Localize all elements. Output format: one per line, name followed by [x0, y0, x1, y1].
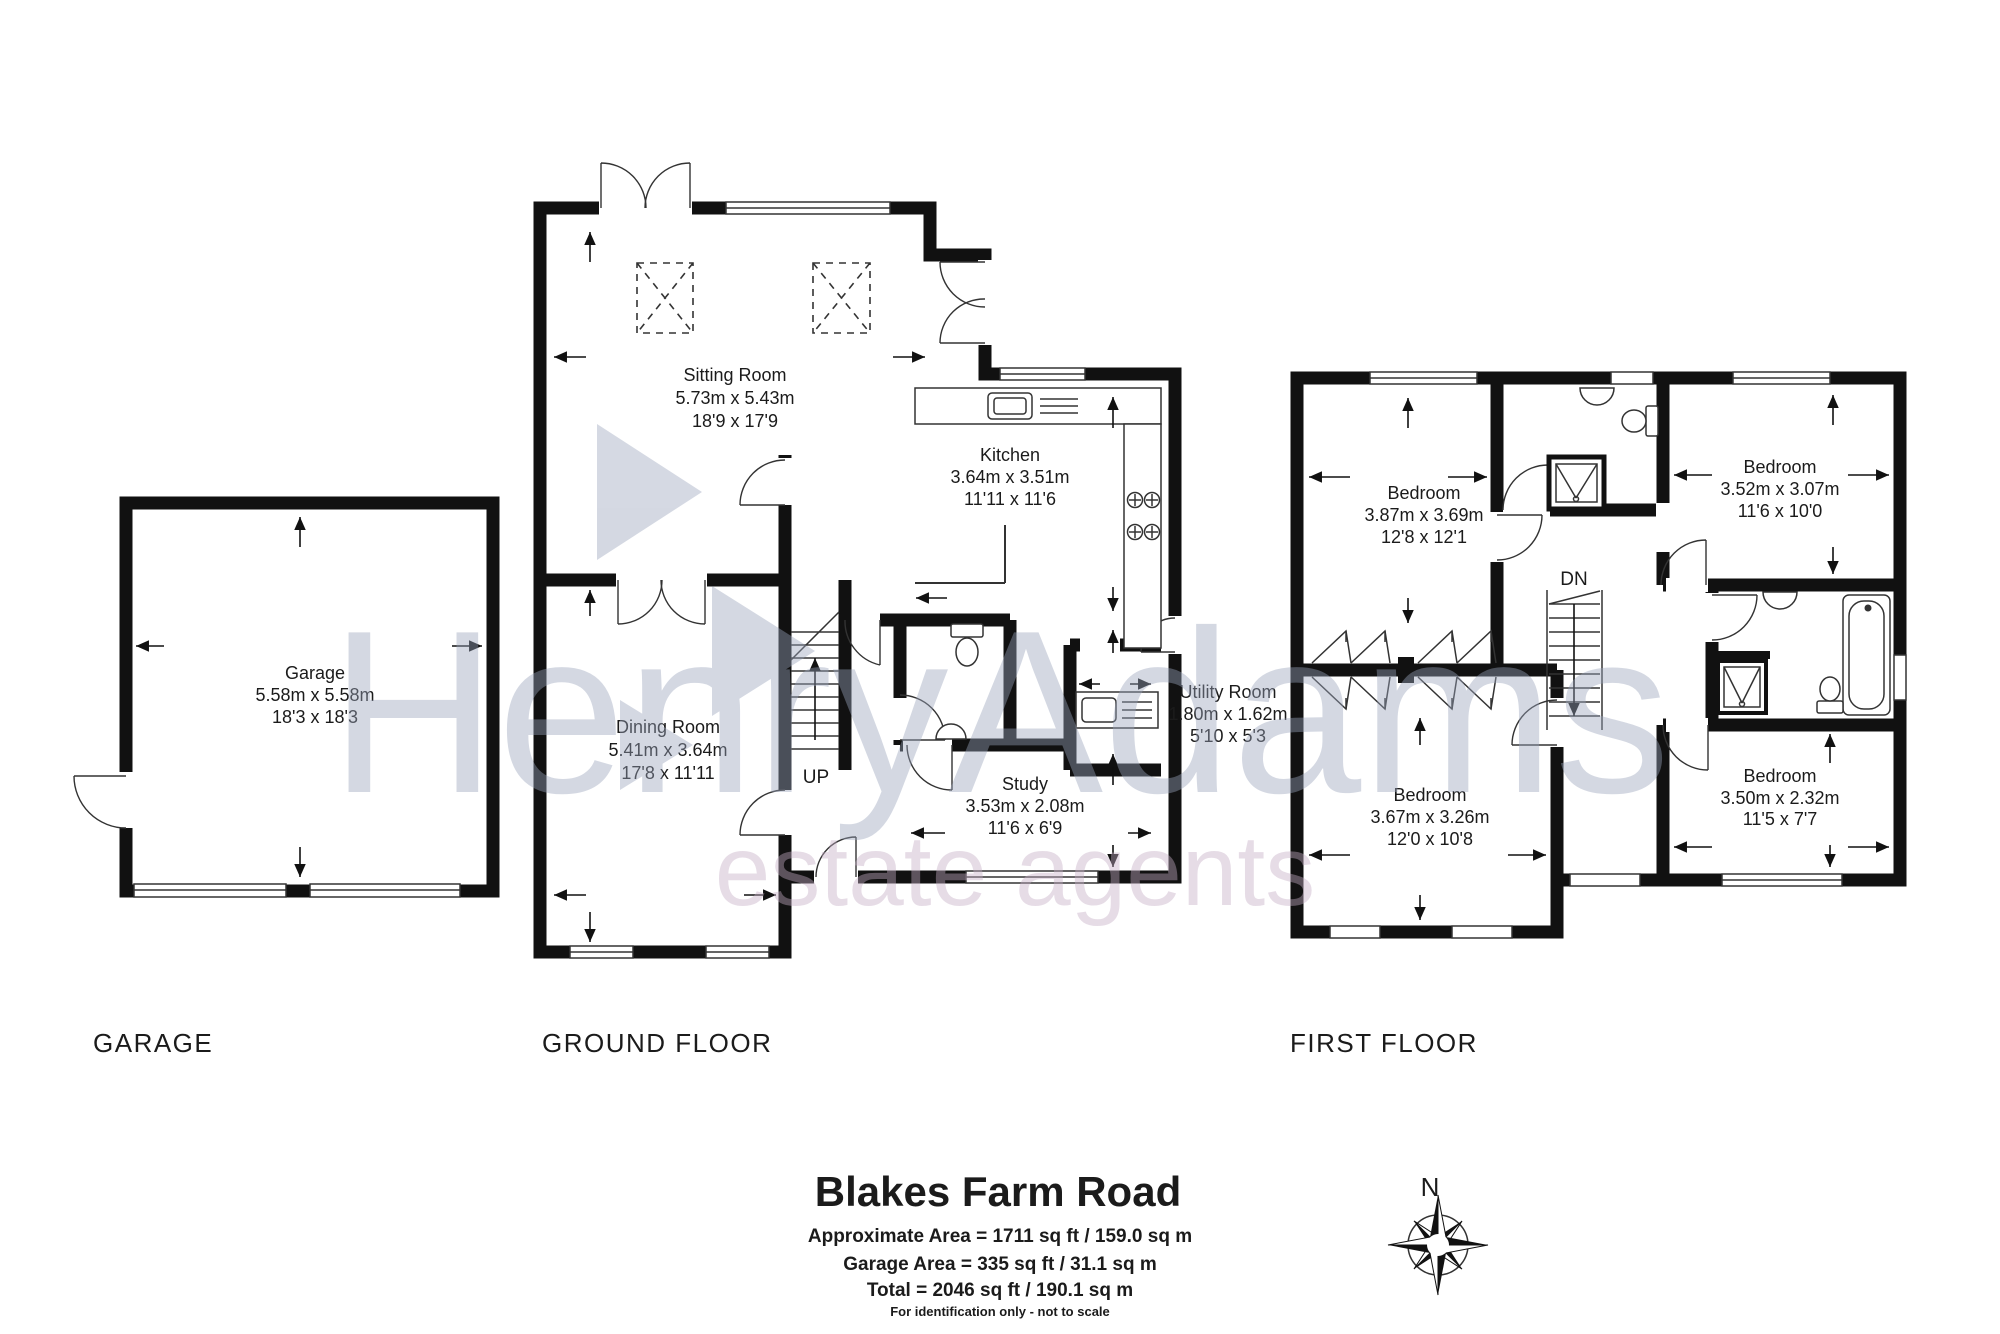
svg-text:12'8 x 12'1: 12'8 x 12'1 — [1381, 527, 1467, 547]
svg-text:11'11 x 11'6: 11'11 x 11'6 — [964, 489, 1056, 509]
ensuite-fixtures — [1549, 388, 1658, 509]
svg-text:3.52m x 3.07m: 3.52m x 3.07m — [1720, 479, 1839, 499]
svg-text:3.50m x 2.32m: 3.50m x 2.32m — [1720, 788, 1839, 808]
svg-text:11'6 x 10'0: 11'6 x 10'0 — [1738, 501, 1823, 521]
floor-labels: GARAGE GROUND FLOOR FIRST FLOOR — [93, 1028, 1478, 1058]
logo-triangle-icon — [597, 424, 702, 560]
floorplan-canvas: Garage 5.58m x 5.58m 18'3 x 18'3 — [0, 0, 2000, 1334]
room-kitchen-label: Kitchen 3.64m x 3.51m 11'11 x 11'6 — [950, 445, 1069, 509]
room-bed2-label: Bedroom 3.52m x 3.07m 11'6 x 10'0 — [1720, 457, 1839, 521]
basin-icon — [1580, 388, 1614, 405]
svg-text:11'5 x 7'7: 11'5 x 7'7 — [1743, 809, 1818, 829]
compass-rose-icon: N — [1388, 1172, 1488, 1295]
toilet-cistern — [1817, 701, 1843, 713]
garage-floor-label: GARAGE — [93, 1028, 213, 1058]
garage-door — [74, 772, 133, 828]
page-title: Blakes Farm Road — [815, 1168, 1181, 1215]
toilet-icon — [1820, 677, 1840, 701]
shower-icon — [1549, 457, 1604, 509]
area-line-3: Total = 2046 sq ft / 190.1 sq m — [867, 1280, 1133, 1301]
north-label: N — [1421, 1172, 1440, 1202]
room-bed4-label: Bedroom 3.50m x 2.32m 11'5 x 7'7 — [1720, 766, 1839, 829]
svg-text:3.64m x 3.51m: 3.64m x 3.51m — [950, 467, 1069, 487]
svg-text:Sitting Room: Sitting Room — [683, 365, 786, 385]
room-sitting-label: Sitting Room 5.73m x 5.43m 18'9 x 17'9 — [675, 365, 794, 431]
basin-icon — [1763, 592, 1797, 609]
skylight-icons — [637, 263, 870, 333]
first-floor-label: FIRST FLOOR — [1290, 1028, 1478, 1058]
watermark-tagline-text: estate agents — [715, 815, 1315, 927]
watermark-brand-text: HenryAdams — [330, 583, 1671, 842]
floorplan-page: Garage 5.58m x 5.58m 18'3 x 18'3 — [0, 0, 2000, 1334]
toilet-icon — [1622, 410, 1646, 432]
svg-text:3.87m x 3.69m: 3.87m x 3.69m — [1364, 505, 1483, 525]
svg-text:Bedroom: Bedroom — [1743, 457, 1816, 477]
svg-text:5.73m x 5.43m: 5.73m x 5.43m — [675, 388, 794, 408]
title-block: Blakes Farm Road Approximate Area = 1711… — [808, 1168, 1192, 1319]
svg-text:Bedroom: Bedroom — [1387, 483, 1460, 503]
svg-text:18'9 x 17'9: 18'9 x 17'9 — [692, 411, 778, 431]
disclaimer-note: For identification only - not to scale — [890, 1304, 1110, 1319]
kitchen-counter-top — [915, 388, 1161, 424]
svg-text:Kitchen: Kitchen — [980, 445, 1040, 465]
area-line-2: Garage Area = 335 sq ft / 31.1 sq m — [843, 1254, 1156, 1275]
svg-text:Bedroom: Bedroom — [1743, 766, 1816, 786]
ground-floor-label: GROUND FLOOR — [542, 1028, 772, 1058]
kitchen-peninsula — [915, 525, 1005, 583]
area-line-1: Approximate Area = 1711 sq ft / 159.0 sq… — [808, 1226, 1192, 1247]
toilet-cistern — [1646, 406, 1658, 436]
room-bed1-label: Bedroom 3.87m x 3.69m 12'8 x 12'1 — [1364, 483, 1483, 547]
bath-icon — [1843, 595, 1890, 715]
shower-icon — [1718, 661, 1766, 713]
